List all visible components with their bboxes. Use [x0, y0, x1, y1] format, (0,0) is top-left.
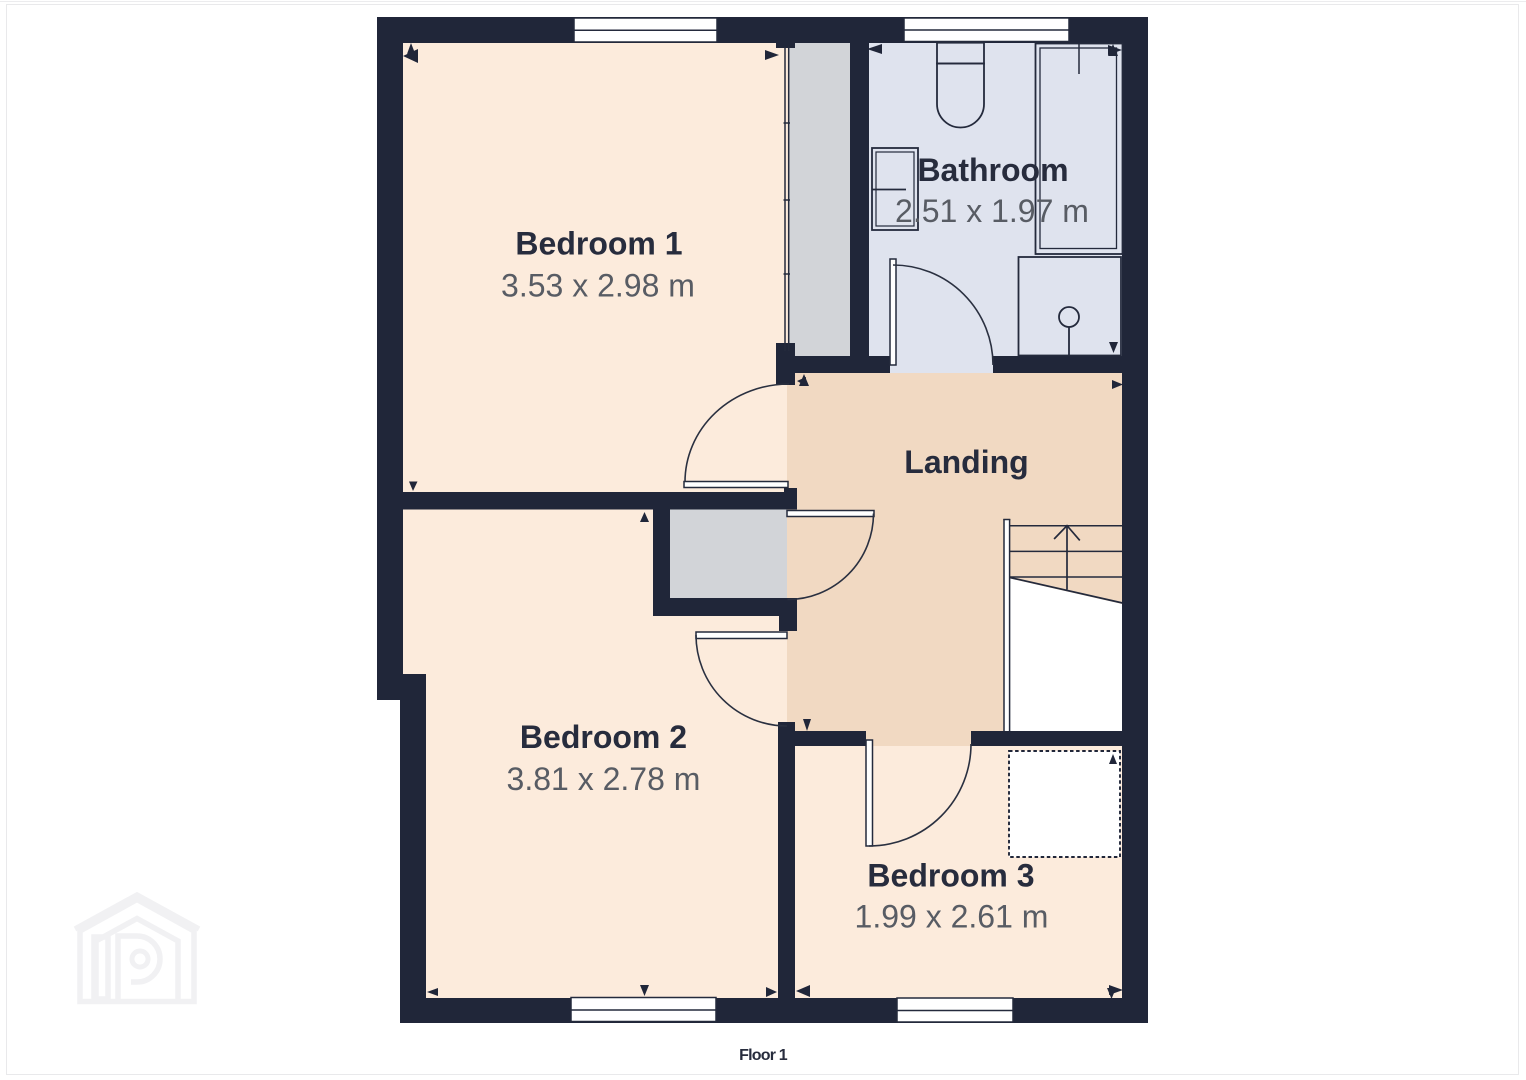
svg-text:Floor 1: Floor 1 [739, 1047, 788, 1064]
svg-text:2.51 x 1.97 m: 2.51 x 1.97 m [895, 193, 1089, 229]
svg-text:3.81 x 2.78 m: 3.81 x 2.78 m [507, 761, 701, 797]
svg-text:Bedroom 3: Bedroom 3 [867, 858, 1034, 894]
svg-text:Bedroom 1: Bedroom 1 [515, 226, 682, 262]
svg-text:Landing: Landing [904, 444, 1028, 480]
svg-text:3.53 x 2.98 m: 3.53 x 2.98 m [501, 268, 695, 304]
svg-text:Bathroom: Bathroom [917, 152, 1068, 188]
svg-text:Bedroom 2: Bedroom 2 [520, 719, 687, 755]
svg-text:1.99 x 2.61 m: 1.99 x 2.61 m [855, 899, 1049, 935]
